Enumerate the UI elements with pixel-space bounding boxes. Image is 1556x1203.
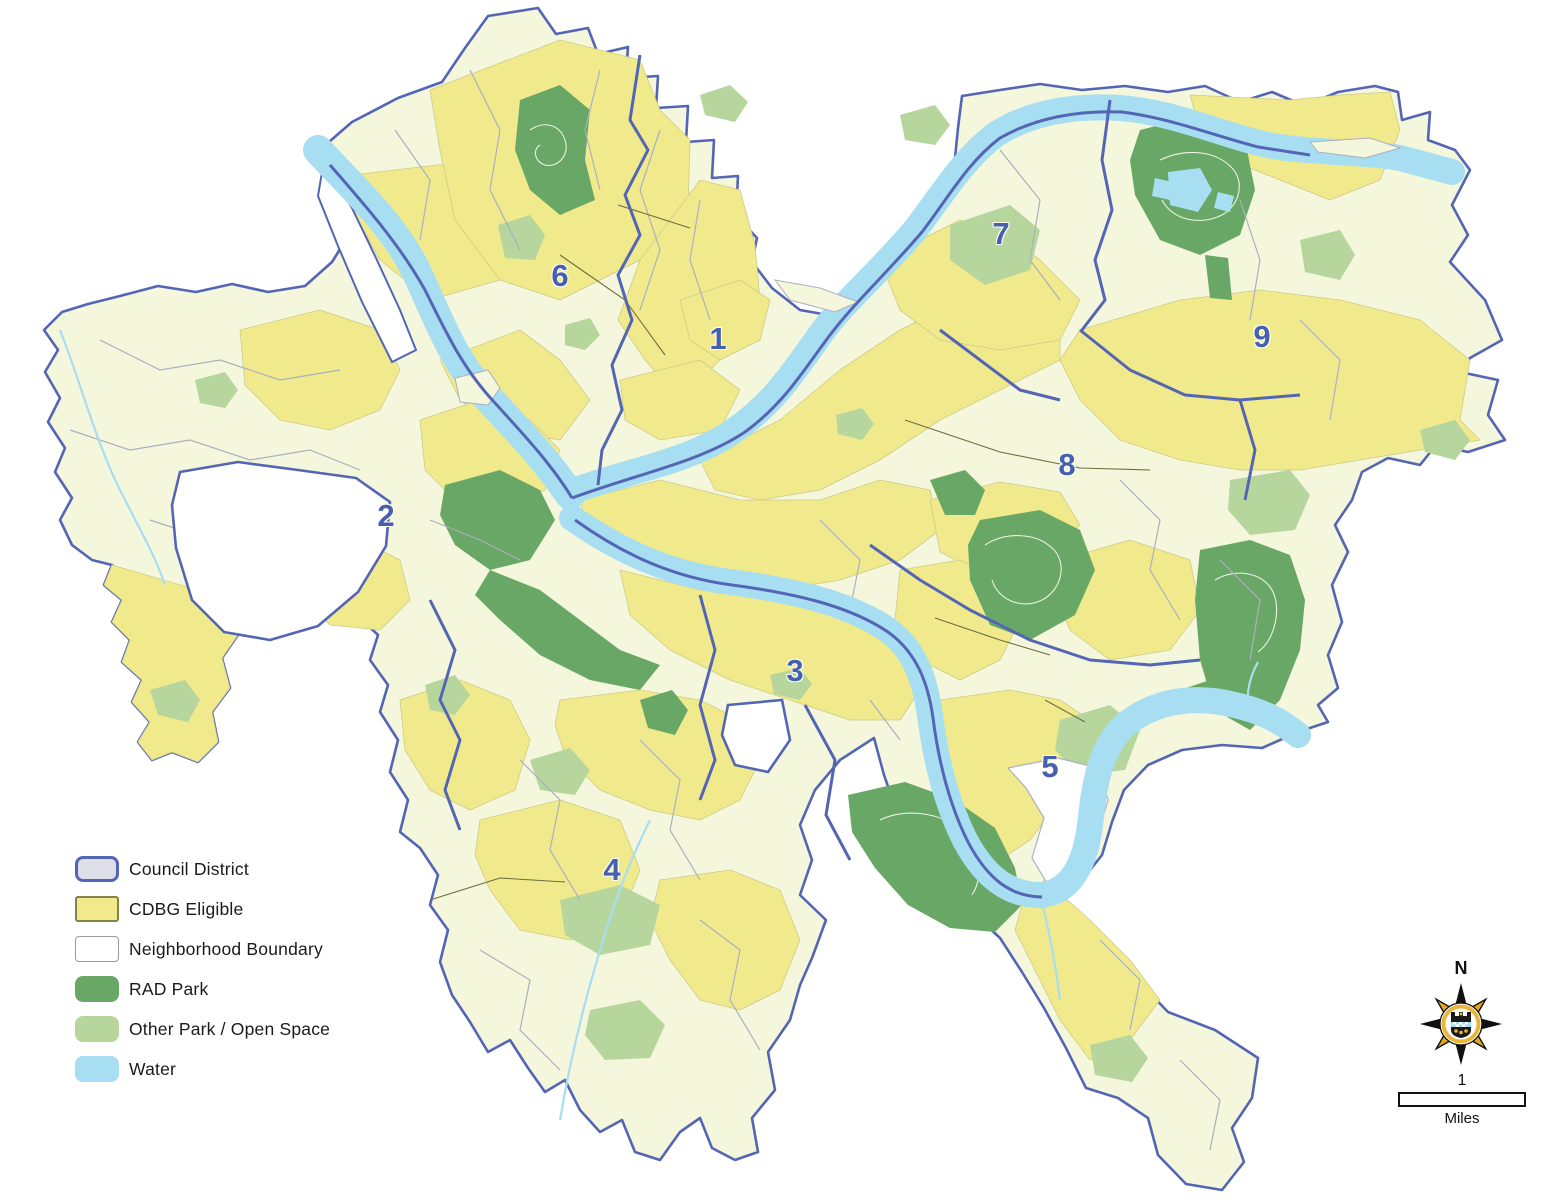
legend-label: Neighborhood Boundary	[129, 939, 323, 960]
legend-label: Other Park / Open Space	[129, 1019, 330, 1040]
legend-item-water: Water	[75, 1049, 330, 1089]
legend-item-neighborhood-boundary: Neighborhood Boundary	[75, 929, 330, 969]
compass-rose-icon	[1416, 979, 1506, 1069]
scale-bar-rect	[1398, 1092, 1526, 1107]
legend-label: RAD Park	[129, 979, 208, 1000]
legend-label: CDBG Eligible	[129, 899, 243, 920]
scale-unit: Miles	[1396, 1110, 1528, 1127]
compass-north-label: N	[1416, 958, 1506, 979]
legend-item-rad-park: RAD Park	[75, 969, 330, 1009]
council-district-swatch-icon	[75, 856, 119, 882]
rad-park-swatch-icon	[75, 976, 119, 1002]
legend-item-cdbg-eligible: CDBG Eligible	[75, 889, 330, 929]
neighborhood-boundary-swatch-icon	[75, 936, 119, 962]
map-legend: Council District CDBG Eligible Neighborh…	[75, 849, 330, 1089]
legend-label: Water	[129, 1059, 176, 1080]
legend-item-other-park: Other Park / Open Space	[75, 1009, 330, 1049]
other-park-swatch-icon	[75, 1016, 119, 1042]
map-canvas: 123456789 Council District CDBG Eligible…	[0, 0, 1556, 1203]
compass-rose: N	[1416, 958, 1506, 1074]
city-crest-icon	[1451, 1012, 1471, 1038]
scale-bar: 1 Miles	[1396, 1072, 1528, 1127]
cdbg-eligible-swatch-icon	[75, 896, 119, 922]
legend-label: Council District	[129, 859, 249, 880]
legend-item-council-district: Council District	[75, 849, 330, 889]
water-swatch-icon	[75, 1056, 119, 1082]
scale-value: 1	[1396, 1072, 1528, 1090]
